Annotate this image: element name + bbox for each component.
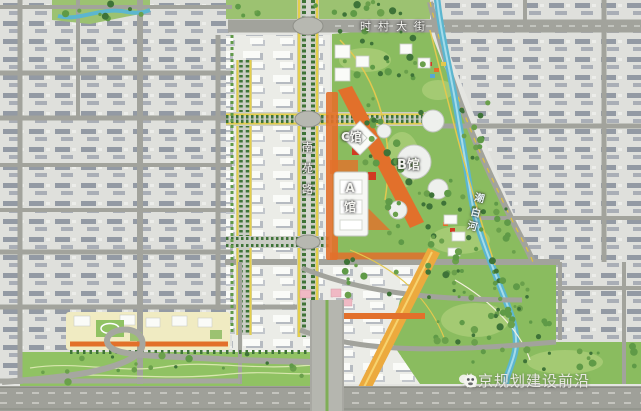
existing-city-southeast [556, 262, 641, 342]
watermark-text: 北京规划建设前沿 [462, 370, 590, 391]
map-canvas [0, 0, 641, 411]
venue-a-building [334, 172, 368, 236]
masterplan-map: 时村大街 南苑路 C馆 B馆 A馆 潮白河 北京规划建设前沿 [0, 0, 641, 411]
watermark: 北京规划建设前沿 [458, 370, 590, 391]
